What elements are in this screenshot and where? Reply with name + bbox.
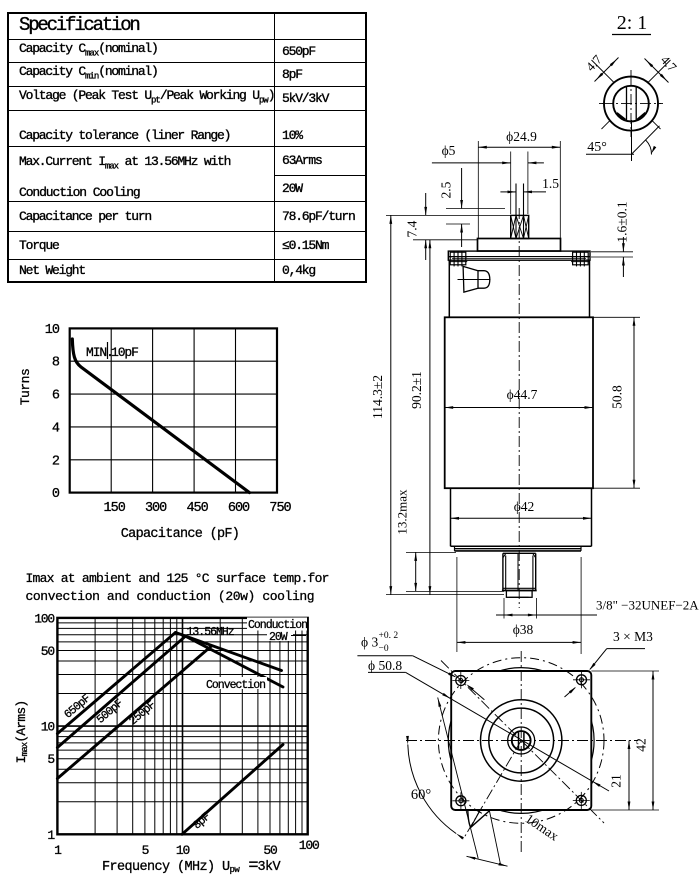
svg-text:8pF: 8pF [191, 810, 214, 832]
svg-text:3/8" −32UNEF−2A: 3/8" −32UNEF−2A [596, 598, 699, 613]
svg-text:+0. 2: +0. 2 [379, 631, 399, 641]
svg-text:ϕ38: ϕ38 [513, 622, 534, 637]
svg-text:100: 100 [34, 611, 54, 626]
svg-text:10: 10 [176, 843, 190, 858]
svg-text:ϕ 50.8: ϕ 50.8 [368, 658, 402, 673]
svg-text:ϕ44.7: ϕ44.7 [507, 387, 538, 402]
svg-text:10: 10 [41, 720, 55, 735]
svg-text:1: 1 [47, 828, 55, 843]
svg-text:10: 10 [45, 323, 60, 338]
svg-text:1: 1 [54, 843, 62, 858]
svg-text:ϕ42: ϕ42 [514, 499, 535, 514]
svg-text:750: 750 [269, 501, 291, 516]
svg-text:150: 150 [104, 501, 126, 516]
svg-text:450: 450 [186, 501, 208, 516]
svg-text:2.5: 2.5 [439, 181, 454, 198]
svg-text:10max: 10max [523, 811, 562, 844]
svg-text:2: 1: 2: 1 [617, 12, 648, 34]
svg-text:90.2±1: 90.2±1 [409, 371, 424, 409]
svg-text:45°: 45° [587, 140, 607, 155]
svg-text:6: 6 [52, 389, 60, 404]
svg-text:600: 600 [228, 501, 250, 516]
svg-text:2: 2 [52, 454, 60, 469]
svg-text:4.7: 4.7 [658, 52, 680, 74]
svg-text:250pF: 250pF [127, 698, 159, 728]
svg-text:Convection: Convection [206, 679, 265, 692]
svg-text:1.6±0.1: 1.6±0.1 [615, 201, 630, 242]
svg-text:50: 50 [41, 644, 55, 659]
svg-text:0: 0 [52, 487, 60, 502]
svg-text:21: 21 [609, 774, 624, 788]
svg-text:13.2max: 13.2max [395, 489, 410, 535]
svg-text:42: 42 [634, 738, 649, 752]
svg-text:ϕ5: ϕ5 [442, 143, 456, 158]
svg-text:13.56MHz: 13.56MHz [187, 626, 234, 639]
svg-text:Imax at ambient and 125 °C sur: Imax at ambient and 125 °C surface temp.… [26, 571, 329, 586]
svg-text:5: 5 [142, 843, 149, 858]
svg-text:Turns: Turns [18, 369, 33, 406]
svg-text:114.3±2: 114.3±2 [370, 375, 385, 419]
svg-text:−0: −0 [379, 644, 389, 654]
svg-text:300: 300 [145, 501, 167, 516]
svg-text:8: 8 [52, 356, 60, 371]
svg-text:7.4: 7.4 [405, 220, 420, 237]
svg-text:convection and conduction (20w: convection and conduction (20w) cooling [26, 589, 315, 604]
svg-text:10pF: 10pF [111, 345, 138, 360]
svg-text:ϕ24.9: ϕ24.9 [506, 129, 537, 144]
svg-text:3 × M3: 3 × M3 [613, 629, 653, 644]
svg-text:50: 50 [263, 843, 277, 858]
svg-text:4: 4 [52, 421, 60, 436]
svg-text:60°: 60° [411, 787, 432, 803]
svg-text:Frequency (MHz) Upw =3kV: Frequency (MHz) Upw =3kV [102, 857, 282, 876]
svg-text:100: 100 [299, 838, 319, 853]
svg-text:Capacitance (pF): Capacitance (pF) [121, 527, 239, 542]
svg-text:ϕ 3: ϕ 3 [361, 635, 378, 650]
svg-text:1.5: 1.5 [542, 176, 559, 191]
svg-text:MIN.: MIN. [86, 345, 113, 360]
svg-text:Imax(Arms): Imax(Arms) [14, 701, 30, 764]
svg-text:20W: 20W [269, 631, 288, 644]
svg-text:50.8: 50.8 [610, 385, 625, 409]
svg-text:5: 5 [47, 752, 54, 767]
